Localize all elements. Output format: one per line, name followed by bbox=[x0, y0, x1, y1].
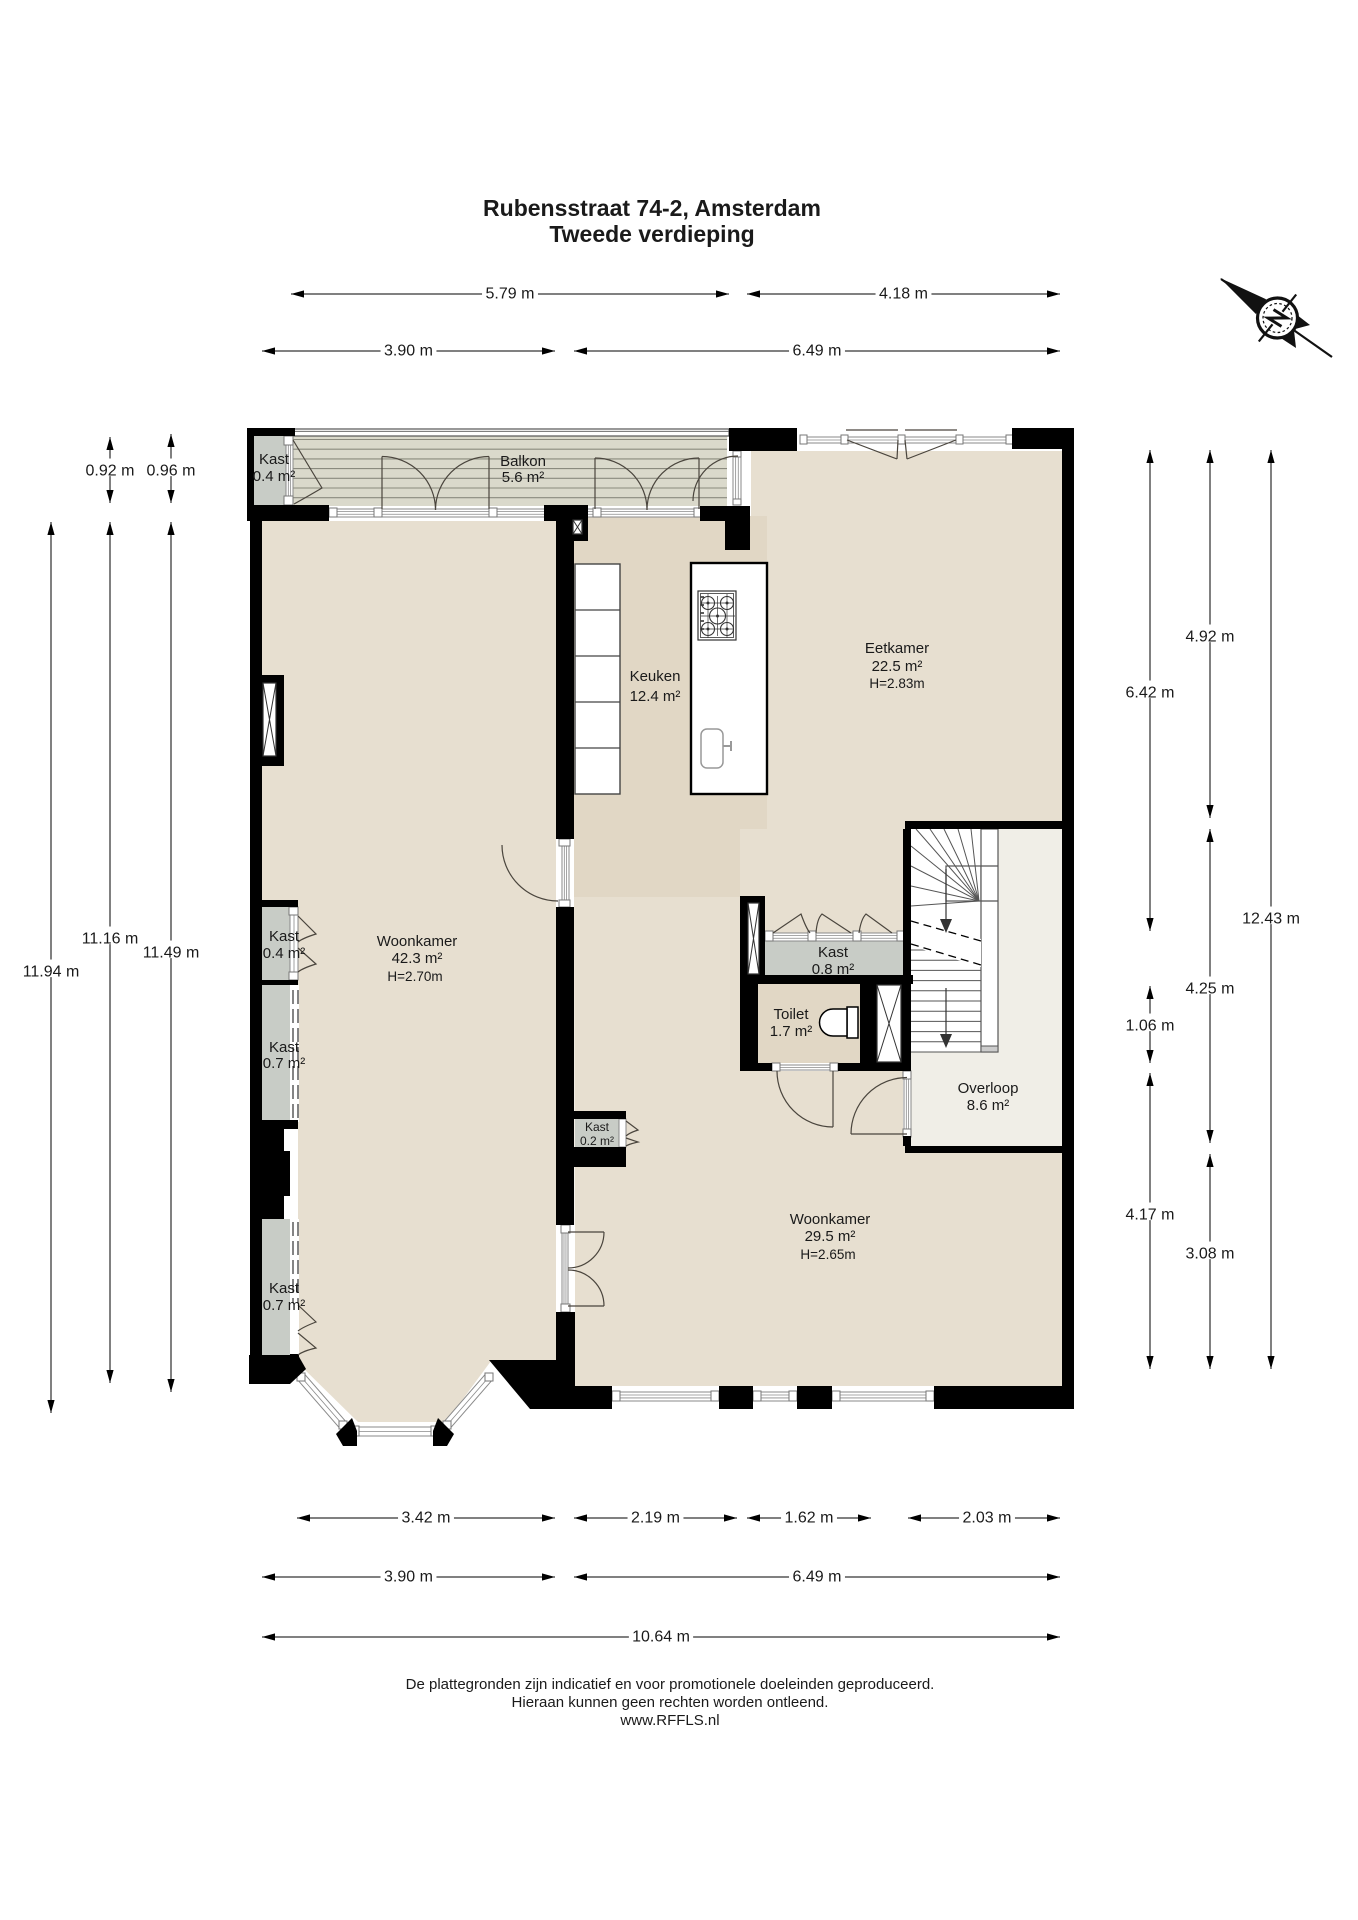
svg-text:11.49 m: 11.49 m bbox=[143, 944, 200, 961]
svg-text:1.62 m: 1.62 m bbox=[785, 1509, 834, 1526]
svg-text:8.6 m²: 8.6 m² bbox=[967, 1097, 1010, 1114]
svg-text:0.4 m²: 0.4 m² bbox=[263, 945, 306, 962]
svg-text:0.2 m²: 0.2 m² bbox=[580, 1134, 614, 1148]
svg-text:4.25 m: 4.25 m bbox=[1186, 980, 1235, 997]
svg-text:2.03 m: 2.03 m bbox=[963, 1509, 1012, 1526]
svg-text:Kast: Kast bbox=[818, 944, 849, 961]
svg-text:1.7 m²: 1.7 m² bbox=[770, 1023, 813, 1040]
svg-text:0.7 m²: 0.7 m² bbox=[263, 1055, 306, 1072]
svg-text:0.96 m: 0.96 m bbox=[147, 462, 196, 479]
svg-text:Kast: Kast bbox=[269, 928, 300, 945]
svg-text:12.43 m: 12.43 m bbox=[1242, 910, 1300, 927]
svg-text:Balkon: Balkon bbox=[500, 453, 546, 470]
svg-text:6.49 m: 6.49 m bbox=[793, 342, 842, 359]
svg-text:5.79 m: 5.79 m bbox=[486, 285, 535, 302]
svg-text:Woonkamer: Woonkamer bbox=[790, 1211, 871, 1228]
svg-text:4.17 m: 4.17 m bbox=[1126, 1206, 1175, 1223]
svg-text:Hieraan kunnen geen rechten wo: Hieraan kunnen geen rechten worden ontle… bbox=[512, 1694, 829, 1711]
svg-text:0.7 m²: 0.7 m² bbox=[263, 1297, 306, 1314]
svg-text:Kast: Kast bbox=[259, 451, 290, 468]
svg-text:De plattegronden zijn indicati: De plattegronden zijn indicatief en voor… bbox=[406, 1676, 935, 1693]
svg-text:H=2.83m: H=2.83m bbox=[869, 676, 924, 691]
svg-text:Kast: Kast bbox=[585, 1120, 610, 1134]
svg-text:4.92 m: 4.92 m bbox=[1186, 628, 1235, 645]
svg-text:0.4 m²: 0.4 m² bbox=[253, 468, 296, 485]
svg-text:10.64 m: 10.64 m bbox=[632, 1628, 690, 1645]
svg-text:Overloop: Overloop bbox=[958, 1080, 1019, 1097]
svg-text:6.42 m: 6.42 m bbox=[1126, 684, 1175, 701]
svg-text:5.6 m²: 5.6 m² bbox=[502, 469, 545, 486]
svg-text:Tweede verdieping: Tweede verdieping bbox=[549, 221, 754, 247]
svg-text:www.RFFLS.nl: www.RFFLS.nl bbox=[619, 1712, 719, 1729]
svg-text:2.19 m: 2.19 m bbox=[631, 1509, 680, 1526]
svg-text:11.16 m: 11.16 m bbox=[82, 930, 139, 947]
svg-text:3.08 m: 3.08 m bbox=[1186, 1245, 1235, 1262]
svg-text:11.94 m: 11.94 m bbox=[23, 963, 80, 980]
svg-text:22.5 m²: 22.5 m² bbox=[872, 658, 923, 675]
svg-text:42.3 m²: 42.3 m² bbox=[392, 950, 443, 967]
svg-text:Kast: Kast bbox=[269, 1039, 300, 1056]
svg-text:H=2.65m: H=2.65m bbox=[800, 1247, 855, 1262]
svg-text:3.90 m: 3.90 m bbox=[384, 342, 433, 359]
svg-text:Woonkamer: Woonkamer bbox=[377, 933, 458, 950]
svg-text:1.06 m: 1.06 m bbox=[1126, 1017, 1175, 1034]
svg-text:4.18 m: 4.18 m bbox=[879, 285, 928, 302]
svg-text:Toilet: Toilet bbox=[773, 1006, 809, 1023]
svg-text:Keuken: Keuken bbox=[630, 668, 681, 685]
svg-text:12.4 m²: 12.4 m² bbox=[630, 688, 681, 705]
svg-text:Eetkamer: Eetkamer bbox=[865, 640, 929, 657]
svg-text:3.42 m: 3.42 m bbox=[402, 1509, 451, 1526]
svg-text:0.92 m: 0.92 m bbox=[86, 462, 135, 479]
svg-text:29.5 m²: 29.5 m² bbox=[805, 1228, 856, 1245]
svg-text:Rubensstraat 74-2, Amsterdam: Rubensstraat 74-2, Amsterdam bbox=[483, 195, 821, 221]
svg-text:0.8 m²: 0.8 m² bbox=[812, 961, 855, 978]
svg-text:H=2.70m: H=2.70m bbox=[387, 969, 442, 984]
svg-text:Kast: Kast bbox=[269, 1280, 300, 1297]
svg-text:3.90 m: 3.90 m bbox=[384, 1568, 433, 1585]
svg-text:6.49 m: 6.49 m bbox=[793, 1568, 842, 1585]
